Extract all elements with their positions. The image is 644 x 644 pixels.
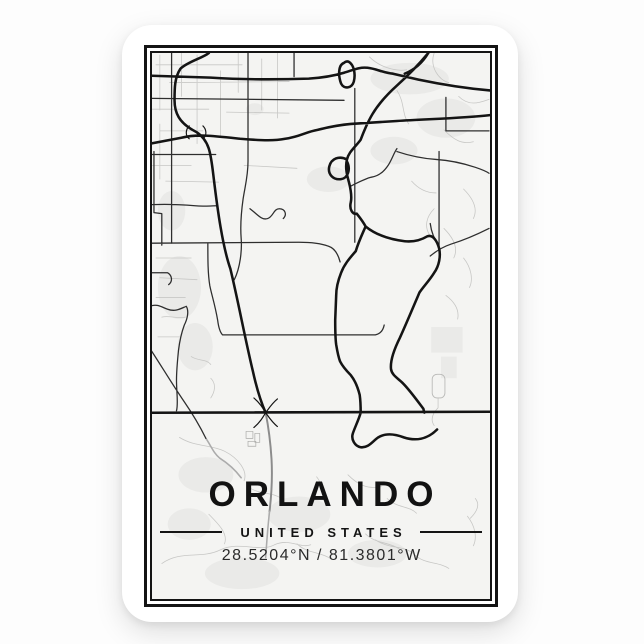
map-frame-inner: ORLANDO UNITED STATES 28.5204°N / 81.380… (150, 51, 492, 601)
product-photo: ORLANDO UNITED STATES 28.5204°N / 81.380… (0, 0, 644, 644)
city-map-graphic (152, 53, 490, 599)
map-subtitle-row: UNITED STATES (152, 524, 490, 540)
map-subtitle: UNITED STATES (240, 525, 406, 540)
map-title: ORLANDO (152, 477, 490, 514)
map-block-cluster (246, 431, 260, 446)
subtitle-right-rule (420, 531, 482, 534)
map-frame-outer: ORLANDO UNITED STATES 28.5204°N / 81.380… (144, 45, 498, 607)
map-coordinates: 28.5204°N / 81.3801°W (152, 547, 490, 565)
magnet-card: ORLANDO UNITED STATES 28.5204°N / 81.380… (122, 25, 518, 622)
map-area: ORLANDO UNITED STATES 28.5204°N / 81.380… (152, 53, 490, 599)
subtitle-left-rule (160, 531, 222, 534)
